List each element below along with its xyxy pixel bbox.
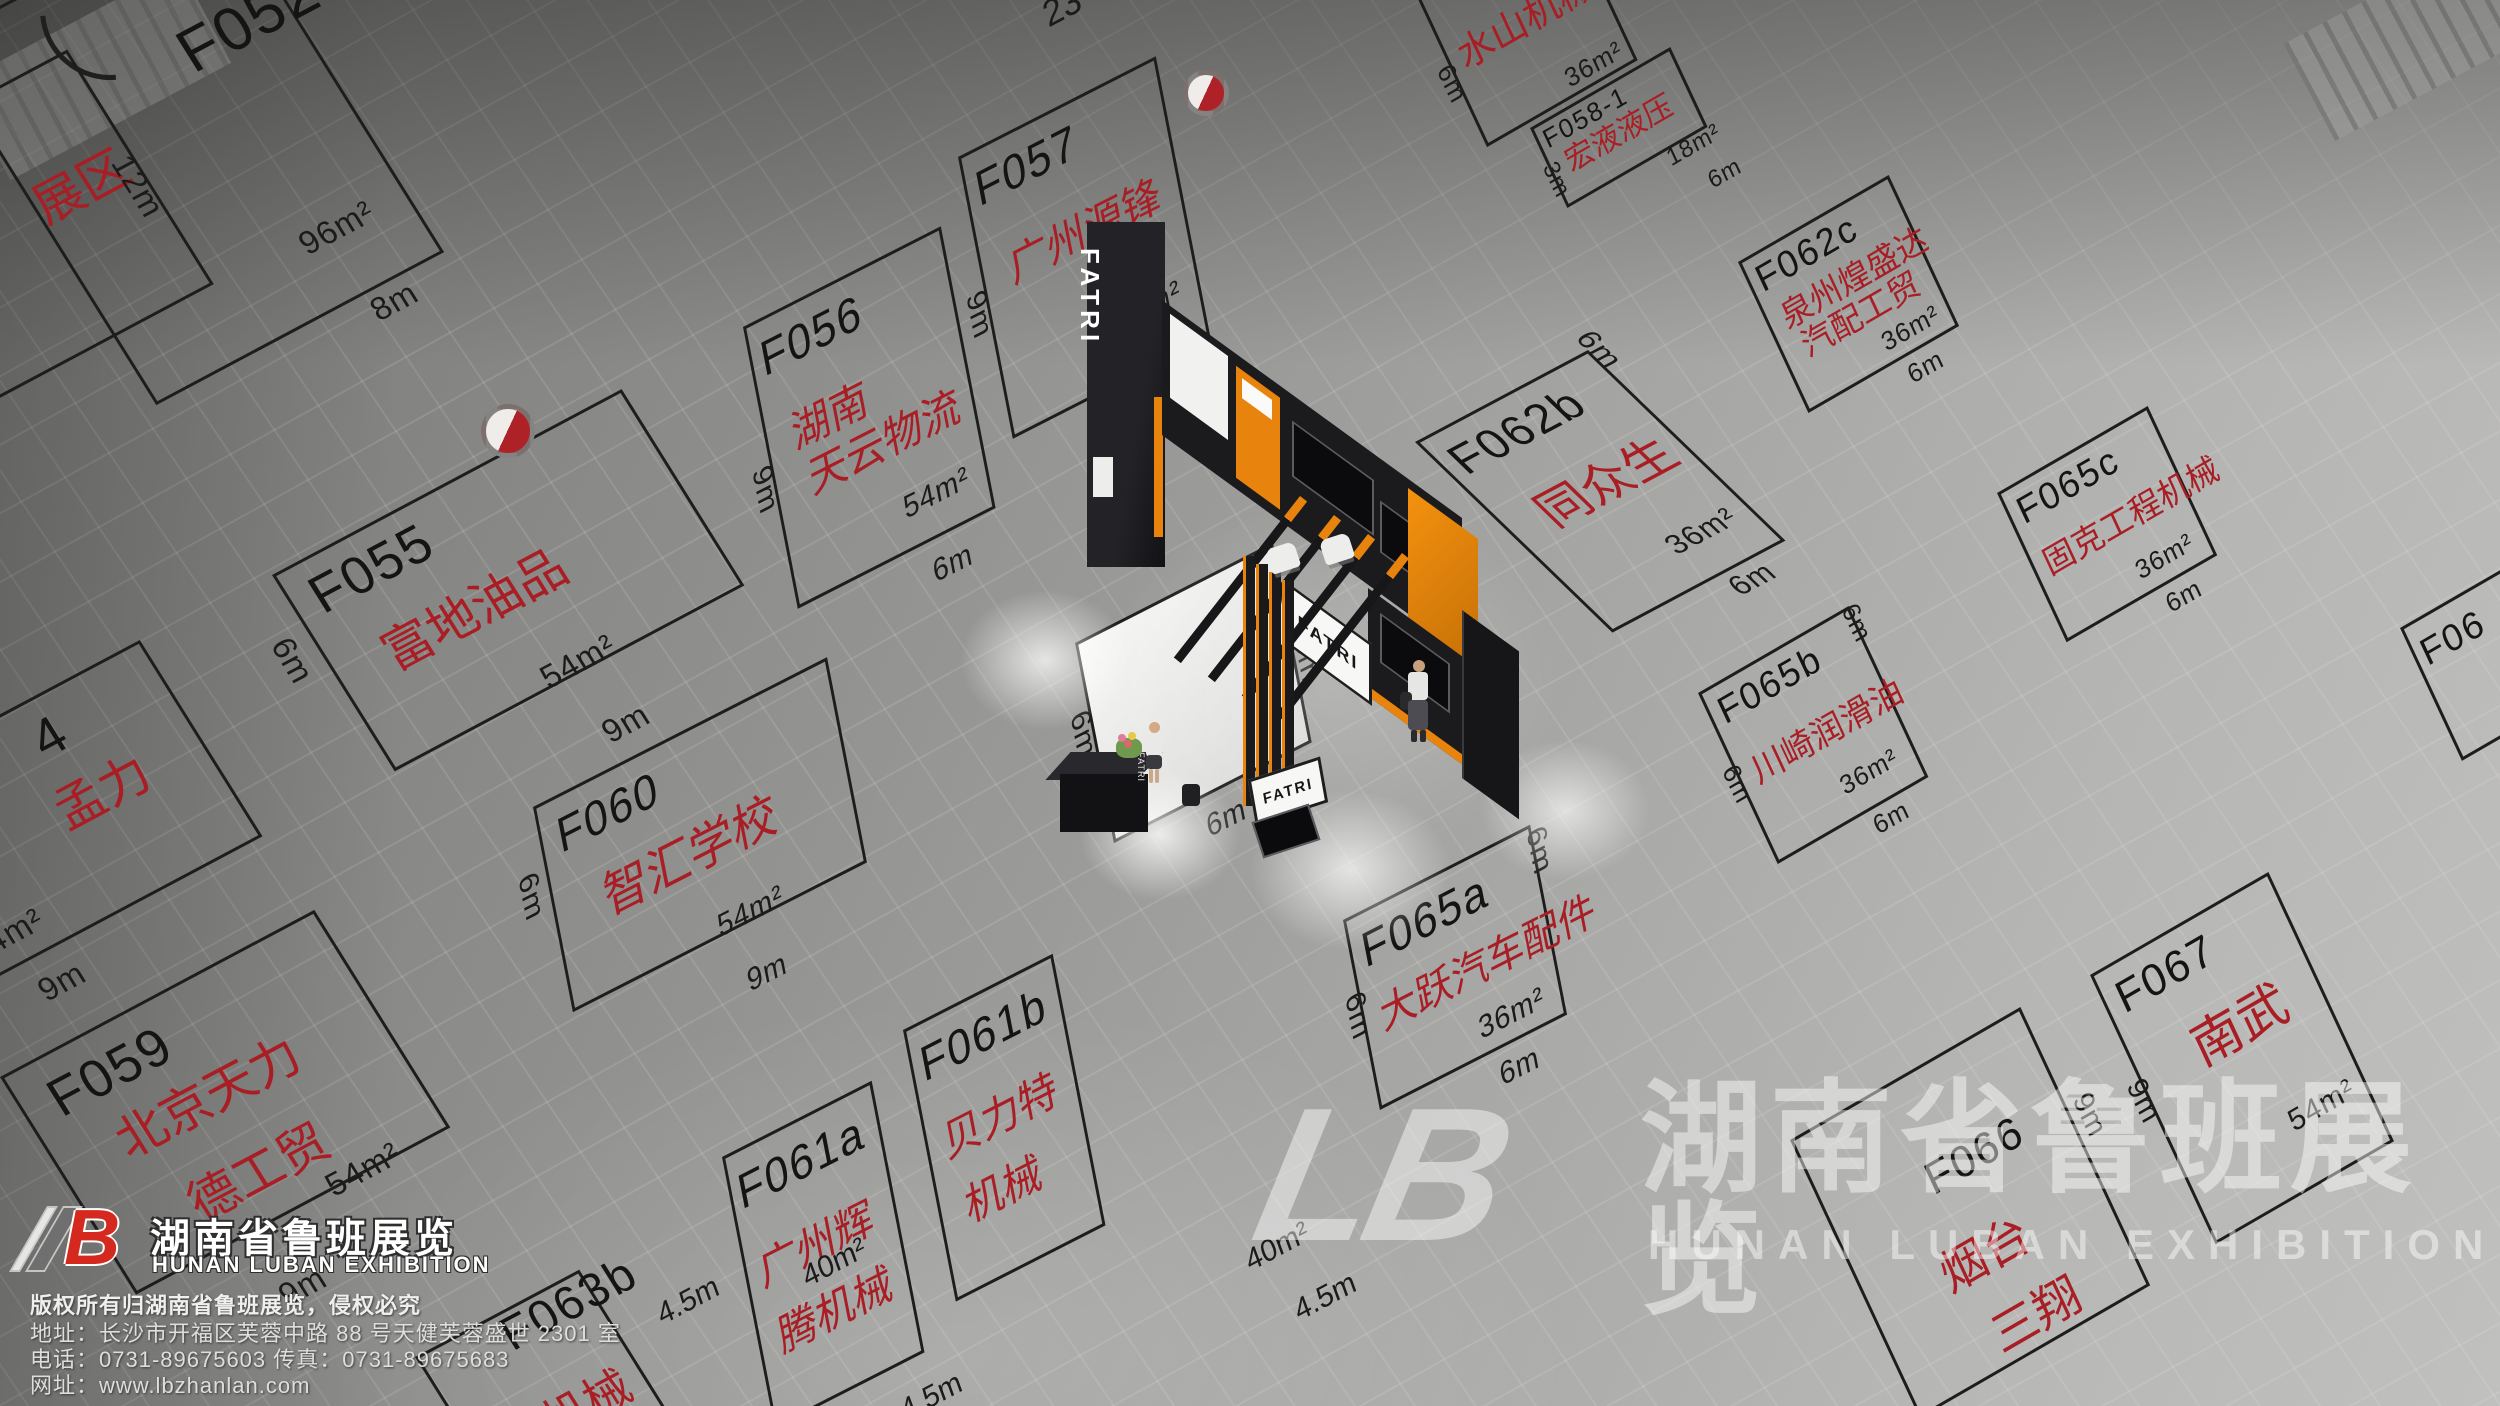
booth-number: F067 <box>2108 924 2223 1024</box>
booth-number: 4 <box>19 703 80 771</box>
booth-F066: F066 烟台 三翔 9m <box>1790 1007 2150 1406</box>
fatri-tower-wall: FATRI <box>1087 222 1165 567</box>
booth-number: F06 <box>2414 602 2492 675</box>
dim-bottom: 6m <box>1903 343 1949 390</box>
dim-left: 9m <box>2119 1073 2167 1130</box>
booth-area: 4m² <box>0 900 51 960</box>
flower <box>1124 740 1132 748</box>
booth-F054-partial: 4 孟力 4m² 9m <box>0 640 263 989</box>
dim-bottom: 6m <box>1721 557 1785 602</box>
dim-bottom: 6m <box>930 536 976 591</box>
booth-number: F052 <box>164 0 334 87</box>
booth-name-line1: 烟台 <box>1933 1207 2039 1304</box>
hall-edge-hatch <box>2283 0 2500 141</box>
booth-F067: F067 南武 54m² 9m <box>2090 872 2394 1244</box>
dim-right: 6m <box>1519 821 1558 881</box>
booth-area: 36m² <box>1835 741 1903 801</box>
dim-bottom: 9m <box>594 695 656 750</box>
partial-label: 23 <box>1037 0 1087 36</box>
booth-F06-partial: F06 <box>2400 550 2500 761</box>
booth-F062c: F062c 泉州煌盛达 汽配工贸 36m² 6m <box>1738 175 1959 413</box>
exhibition-floorplan: 展区 F052 96m² 8m 12m 4 孟力 4m² 9m F055 富地油… <box>0 0 2500 1406</box>
fatri-logo-front: FATRI <box>1262 774 1315 807</box>
column-marker <box>481 404 535 458</box>
booth-area: 54m² <box>318 1135 408 1204</box>
dim-left: 9m <box>960 284 999 344</box>
slat-column <box>1256 564 1268 806</box>
slat-column <box>1243 556 1255 806</box>
dim-bottom: 6m <box>1497 1039 1543 1094</box>
booth-name-line1: 贝力特 <box>939 1063 1061 1168</box>
dim-left: 6m <box>263 631 322 690</box>
booth-F065b: F065b 川崎润滑油 36m² 6m 6m 6m <box>1698 606 1928 864</box>
dim-left: 9m <box>746 460 785 520</box>
f061a-dim-label: 4.5m <box>653 1269 724 1333</box>
flower <box>1128 732 1136 740</box>
dim-left: 6m <box>1338 986 1377 1046</box>
reception-desk-front: FATRI <box>1060 774 1148 832</box>
dim-bottom: 9m <box>744 945 790 1000</box>
fatri-logo-desk: FATRI <box>1136 752 1146 782</box>
booth-area: 54m² <box>715 878 786 946</box>
booth-area: 36m² <box>1476 980 1547 1048</box>
booth-number: F066 <box>1917 1106 2032 1206</box>
booth-F065a: F065a 大跃汽车配件 36m² 6m 6m 6m <box>1343 825 1567 1110</box>
booth-area: 96m² <box>291 193 381 262</box>
booth-name: 南武 <box>2183 973 2298 1078</box>
f061b-area-label: 40m² <box>1241 1215 1313 1279</box>
dim-bottom: 6m <box>1868 794 1914 841</box>
booth-number: F056 <box>756 282 867 388</box>
booth-number: F057 <box>971 112 1082 218</box>
dim-right: 6m <box>1567 326 1630 374</box>
booth-name: 同众生 <box>1523 430 1691 537</box>
luban-logo-b: B <box>64 1192 120 1283</box>
dim-left: 6m <box>511 866 550 926</box>
booth-area: 54m² <box>901 460 972 528</box>
dim-right: 9m <box>2065 1087 2113 1144</box>
dim-bottom: 9m <box>31 954 93 1009</box>
booth-name: 机械 <box>533 1361 642 1406</box>
fatri-logo-tower: FATRI <box>1074 248 1105 346</box>
wall-poster <box>1170 314 1228 440</box>
booth-F061a: F061a 广州辉 腾机械 <box>722 1081 924 1406</box>
dim-bottom: 6m <box>1704 152 1746 195</box>
website-line: 网址：www.lbzhanlan.com <box>30 1368 310 1400</box>
booth-area: 54m² <box>533 627 623 696</box>
f061b-dim-label: 4.5m <box>1290 1265 1361 1329</box>
dim-left: 12m <box>103 148 172 223</box>
booth-F056: F056 湖南 天云物流 54m² 6m 9m <box>743 226 996 609</box>
booth-name-line2: 机械 <box>961 1146 1045 1232</box>
tower-poster <box>1093 457 1113 497</box>
booth-name-line2: 三翔 <box>1984 1268 2090 1365</box>
booth-number: F062b <box>1434 378 1599 483</box>
booth-F061b: F061b 贝力特 机械 <box>903 954 1105 1302</box>
fatri-right-pillar <box>1462 610 1519 819</box>
luban-logo: B <box>30 1204 140 1276</box>
desk-chair <box>1182 784 1200 806</box>
logo-title-en: HUNAN LUBAN EXHIBITION <box>152 1252 491 1278</box>
dim-bottom: 6m <box>2161 573 2207 620</box>
column-marker <box>1183 70 1229 116</box>
dim-right: 6m <box>1835 598 1878 648</box>
booth-F060: F060 智汇学校 54m² 9m 6m <box>533 657 867 1012</box>
booth-F065c: F065c 固克工程机械 36m² 6m <box>1997 406 2217 642</box>
aisle-dim-label: 4.5m <box>896 1365 967 1406</box>
booth-area: 54m² <box>2283 1072 2360 1139</box>
booth-area: 36m² <box>1657 502 1747 561</box>
dim-bottom: 8m <box>363 274 425 329</box>
